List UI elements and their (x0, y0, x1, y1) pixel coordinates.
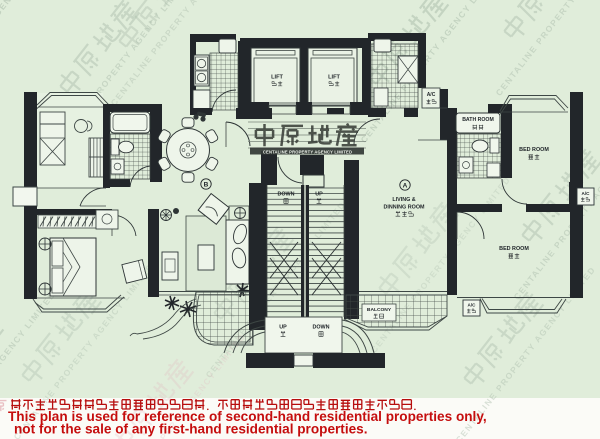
svg-text:not for the sale of any first-: not for the sale of any first-hand resid… (14, 422, 368, 437)
